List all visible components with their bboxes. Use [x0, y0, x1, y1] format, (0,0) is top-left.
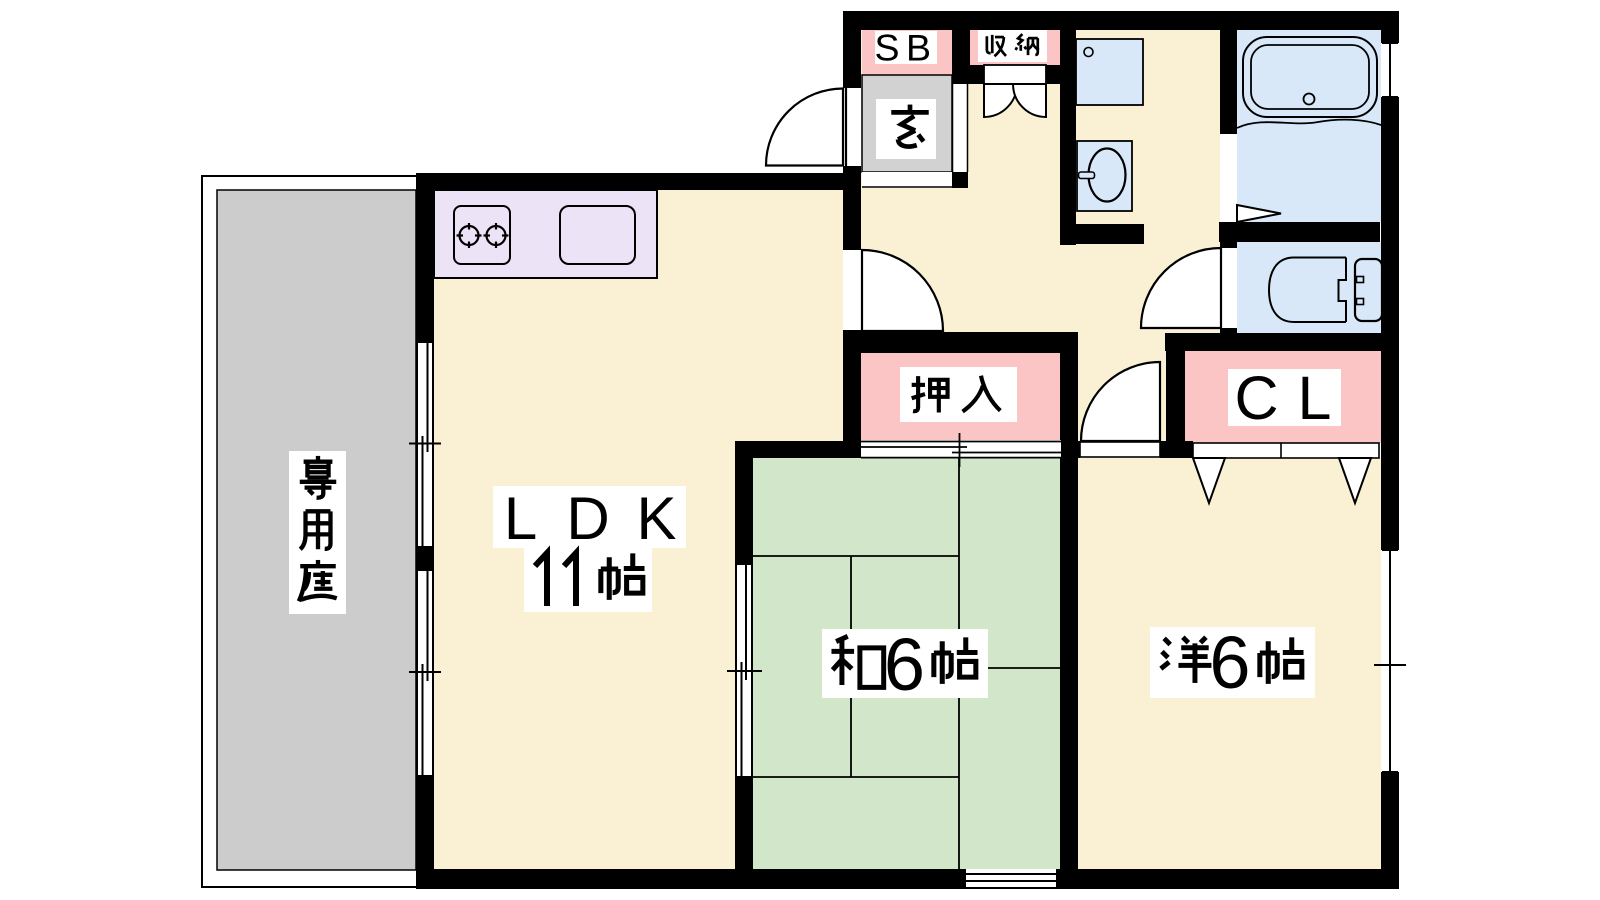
svg-text:L: L	[1298, 364, 1332, 432]
svg-text:D: D	[566, 485, 609, 552]
svg-text:S: S	[874, 27, 899, 69]
svg-text:L: L	[504, 485, 537, 552]
svg-text:C: C	[1234, 364, 1278, 432]
svg-text:6: 6	[1209, 621, 1250, 704]
svg-text:6: 6	[884, 623, 925, 706]
svg-text:B: B	[906, 27, 931, 69]
svg-text:K: K	[636, 485, 676, 552]
